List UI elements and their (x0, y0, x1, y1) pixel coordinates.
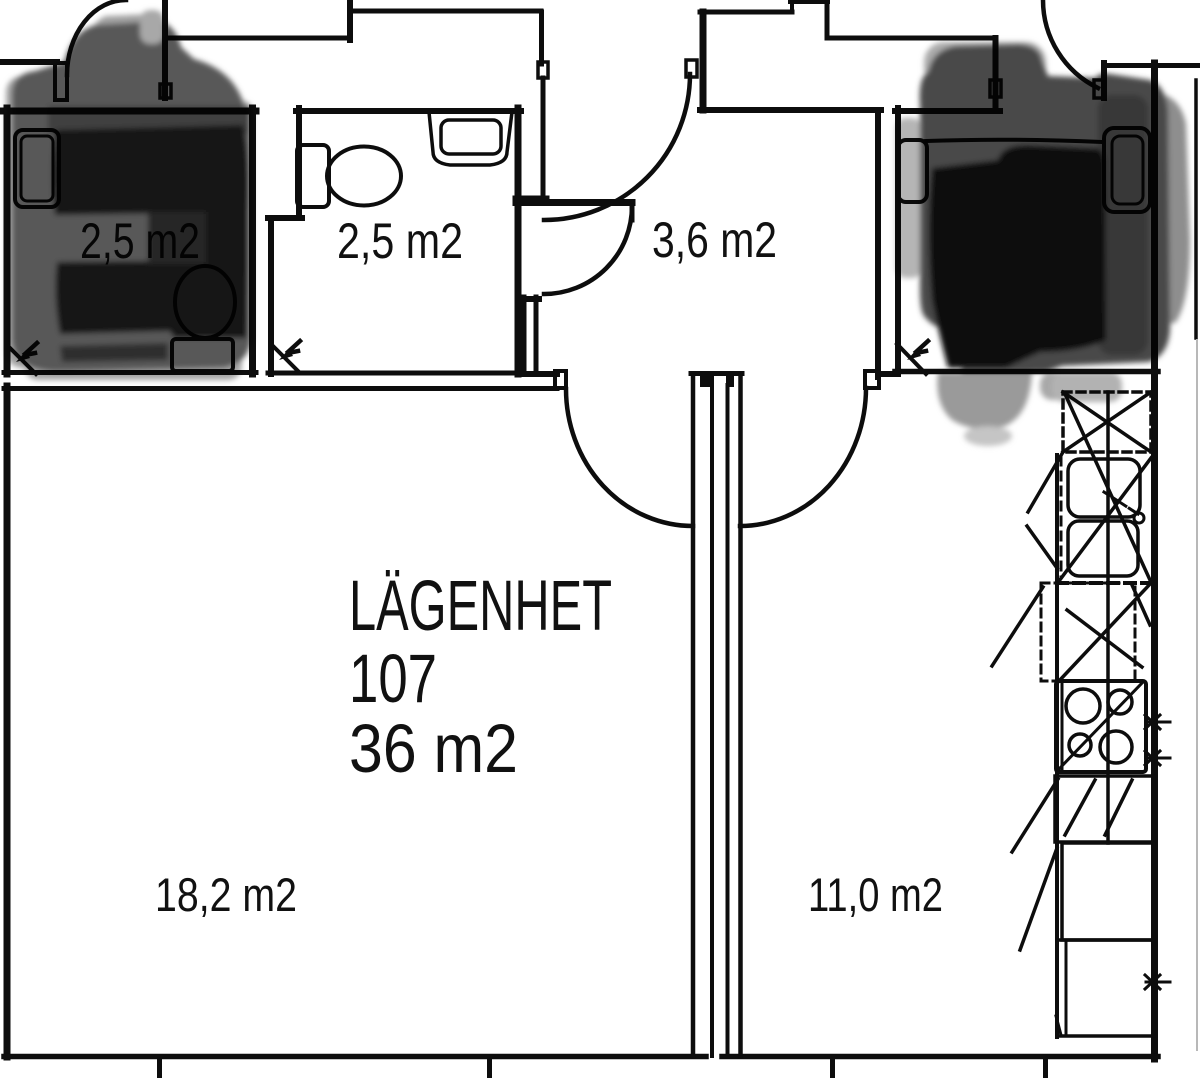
svg-text:3,6 m2: 3,6 m2 (652, 212, 777, 268)
svg-text:107: 107 (349, 640, 437, 717)
svg-text:LÄGENHET: LÄGENHET (349, 567, 612, 646)
svg-text:11,0 m2: 11,0 m2 (808, 868, 943, 921)
svg-text:2,5 m2: 2,5 m2 (337, 213, 463, 269)
svg-text:18,2 m2: 18,2 m2 (155, 868, 297, 921)
svg-text:36 m2: 36 m2 (349, 710, 518, 787)
